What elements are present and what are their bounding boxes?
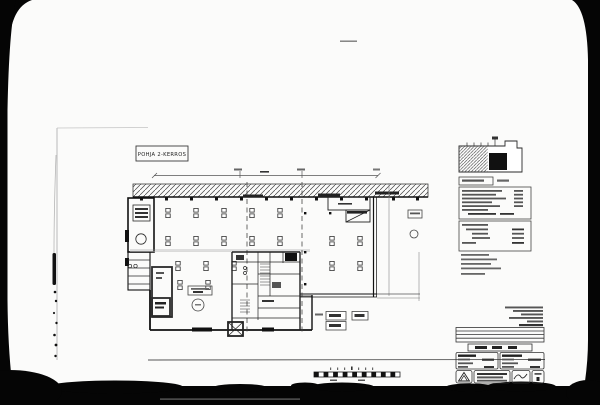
floor-label-text: POHJA 2-KERROS [138,152,186,158]
scanned-drawing-page: POHJA 2-KERROS [0,0,600,405]
floor-plan-scan: POHJA 2-KERROS [0,0,600,405]
floor-label: POHJA 2-KERROS [136,146,188,161]
